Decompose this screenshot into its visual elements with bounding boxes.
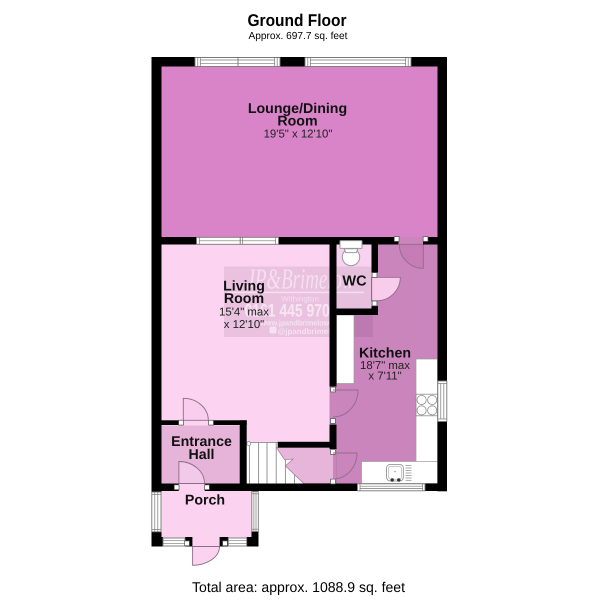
- svg-text:15'4" max: 15'4" max: [219, 307, 269, 319]
- svg-text:Approx. 697.7 sq. feet: Approx. 697.7 sq. feet: [249, 31, 348, 42]
- svg-text:Porch: Porch: [185, 493, 225, 509]
- svg-text:Room: Room: [277, 114, 317, 130]
- svg-text:Hall: Hall: [188, 447, 214, 463]
- svg-text:x 12'10": x 12'10": [224, 319, 264, 331]
- svg-text:Ground Floor: Ground Floor: [248, 11, 347, 30]
- svg-text:Room: Room: [224, 291, 264, 307]
- svg-text:19'5" x 12'10": 19'5" x 12'10": [264, 128, 333, 140]
- svg-text:x 7'11": x 7'11": [368, 371, 401, 383]
- svg-text:WC: WC: [342, 273, 367, 289]
- svg-text:Total area: approx. 1088.9 sq.: Total area: approx. 1088.9 sq. feet: [192, 580, 405, 596]
